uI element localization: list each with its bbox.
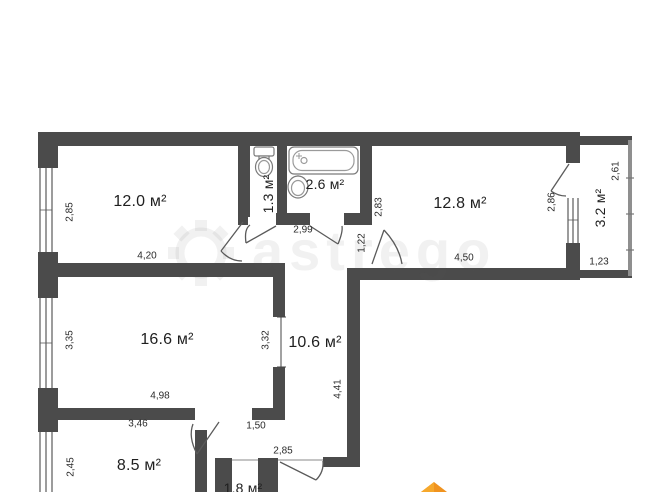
floor-plan-drawing [0,0,670,492]
bathtub-icon [289,147,358,174]
floor-plan-canvas: astrego 12.0 м² 1.3 м² 2.6 м² 12.8 м² 3.… [0,0,670,492]
window-bedroom-1-icon [40,168,52,252]
door-balcony-icon [551,164,569,196]
toilet-icon [254,147,274,177]
dimension-lines [277,317,286,367]
door-hallway-icon [278,460,323,480]
sink-icon [288,176,308,198]
window-living-room-icon [40,298,52,388]
door-wc-icon [246,225,277,243]
brand-logo-triangle [421,482,447,492]
door-bedroom-2-icon [372,230,402,264]
fixtures [254,147,358,198]
window-kitchen-icon [40,432,52,492]
door-bathroom-icon [310,226,342,244]
window-balcony-icon [568,198,578,243]
walls [38,132,632,492]
balcony-glazing [626,140,634,276]
